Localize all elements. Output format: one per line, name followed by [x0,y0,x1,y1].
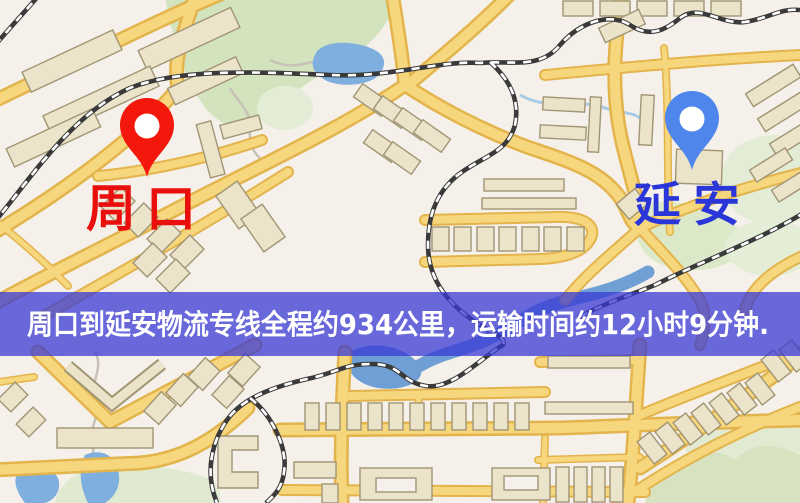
destination-label: 延安 [634,178,752,233]
banner-text: 周口到延安物流专线全程约934公里，运输时间约12小时9分钟. [27,308,769,341]
map-image: 周口 延安 周口到延安物流专线全程约934公里，运输时间约12小时9分钟. [0,0,800,503]
origin-label: 周口 [86,180,206,238]
route-info-banner: 周口到延安物流专线全程约934公里，运输时间约12小时9分钟. [0,292,800,356]
map-screenshot: 周口 延安 周口到延安物流专线全程约934公里，运输时间约12小时9分钟. [0,0,800,503]
